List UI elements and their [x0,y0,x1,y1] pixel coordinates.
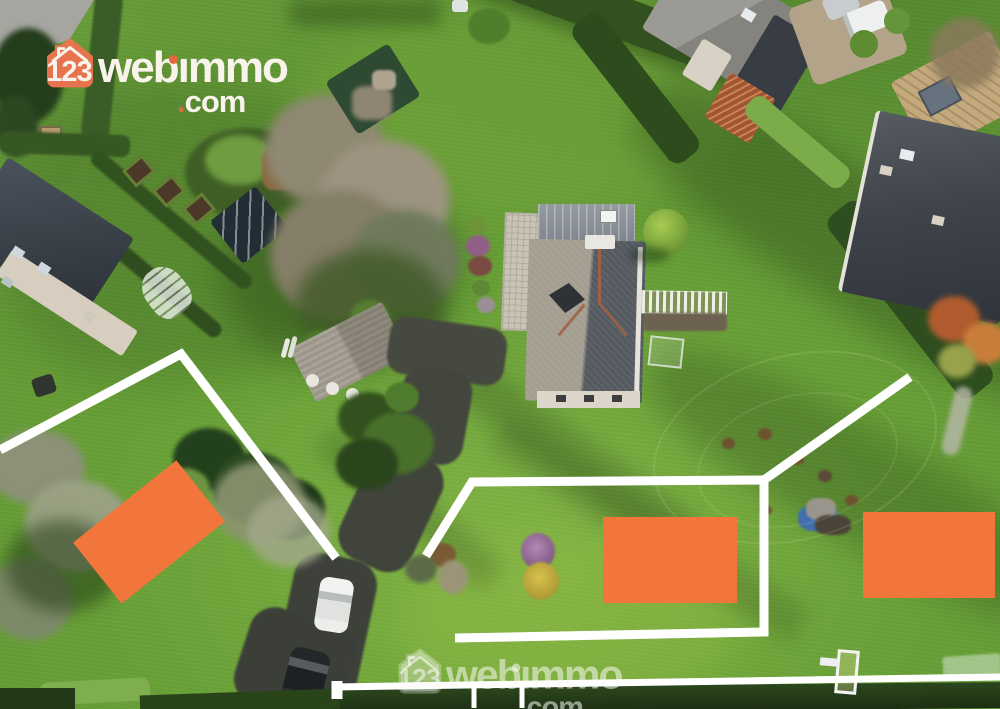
roadside-object [452,0,468,12]
sale-sign-arm [820,657,839,667]
watermark-tld-dot: . [519,691,526,709]
flower-bed [467,217,487,233]
bare-tree [248,495,330,567]
logo-house-number: 123 [42,56,96,89]
bush-cluster [336,438,398,490]
glass-panel [942,653,1000,681]
moss-bush [158,468,210,510]
bush [385,382,419,412]
flower-bed [477,297,495,313]
facade-window [584,395,594,402]
tree-canopy [930,18,1000,88]
logo-i-dot [169,55,178,64]
shed-clutter [372,70,396,90]
flower-bed [466,235,490,257]
facade-window [556,395,566,402]
barrel [306,374,319,387]
facade-window [612,395,622,402]
flower-bed [472,280,490,296]
main-roof [525,238,646,403]
roof-skylight [600,210,617,223]
shadow-band [290,0,440,26]
logo-123webimmo: 123 webımmo .com [40,34,280,124]
logo-tld: .com [177,86,245,117]
grey-shrub [438,560,468,594]
bush [884,8,910,34]
grey-shrub [405,555,437,583]
aerial-photo-stage: 123 webımmo .com 123 webımmo .com [0,0,1000,709]
glass-frame [648,335,685,368]
flower-bed [468,256,492,276]
pergola [641,290,727,314]
ridge-tile [598,247,601,305]
shed-clutter [352,86,392,120]
bush [468,8,510,44]
watermark-123webimmo: 123 webımmo .com [392,644,615,709]
pergola-clutter [643,313,727,331]
yellow-shrub [523,562,559,600]
sale-sign [834,649,860,695]
watermark-house-number: 123 [394,664,444,695]
watermark-tld: .com [519,692,583,709]
bush [850,30,878,58]
autumn-bush [938,344,976,378]
hedge-row [0,131,130,158]
barrel [326,382,339,395]
hedge-band [0,688,75,709]
rooftop-box [585,235,615,249]
logo-tld-dot: . [177,84,185,119]
tree-shadow [628,247,670,263]
tree-shadow [5,520,120,612]
watermark-i-dot [512,664,520,672]
